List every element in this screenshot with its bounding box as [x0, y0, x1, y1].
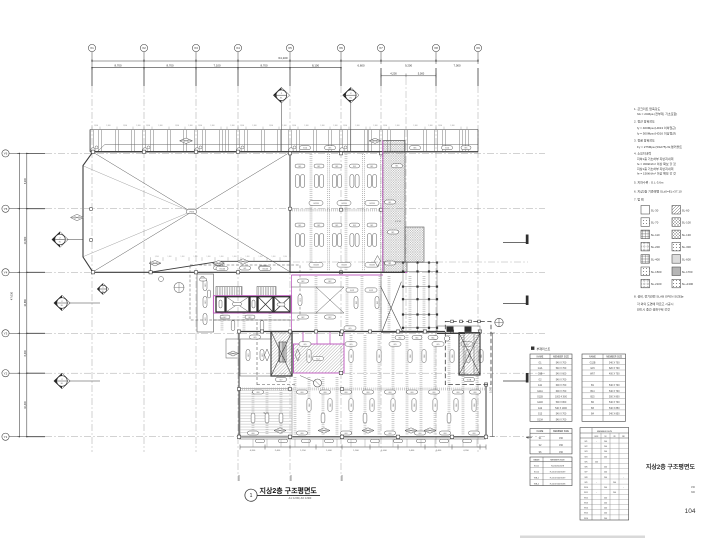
svg-text:G1B: G1B — [538, 374, 543, 376]
svg-text:G13: G13 — [538, 414, 543, 416]
svg-text:fy = 500Mpa (HD16 이상철근): fy = 500Mpa (HD16 이상철근) — [637, 131, 676, 136]
svg-text:SC01: SC01 — [534, 466, 540, 468]
svg-text:1,300: 1,300 — [428, 125, 432, 127]
svg-text:Fy = 275Mpa (SS275)-W,앵커볼트: Fy = 275Mpa (SS275)-W,앵커볼트 — [637, 144, 682, 149]
svg-text:8,700: 8,700 — [167, 63, 174, 67]
svg-text:1,300: 1,300 — [168, 256, 172, 258]
svg-text:1. 콘크리트 압축강도: 1. 콘크리트 압축강도 — [634, 106, 660, 111]
svg-text:1: 1 — [250, 493, 253, 499]
svg-text:500 X 800: 500 X 800 — [556, 402, 567, 404]
svg-text:1,300: 1,300 — [155, 256, 159, 258]
svg-text:1,300: 1,300 — [181, 256, 185, 258]
svg-text:SC02: SC02 — [534, 472, 540, 474]
svg-text:A1: 1/150, A3: 1/300: A1: 1/150, A3: 1/300 — [289, 497, 312, 500]
svg-text:G11: G11 — [538, 385, 543, 387]
svg-text:1,300: 1,300 — [413, 125, 417, 127]
svg-text:540 X 700: 540 X 700 — [609, 391, 620, 393]
svg-text:WB-2: WB-2 — [534, 484, 540, 486]
svg-text:620 X 700: 620 X 700 — [609, 368, 620, 370]
svg-text:OWS: OWS — [189, 211, 195, 213]
svg-text:X7: X7 — [379, 46, 383, 50]
svg-text:G11B: G11B — [369, 203, 375, 205]
svg-text:SL-30: SL-30 — [651, 208, 659, 212]
svg-text:1,300: 1,300 — [283, 256, 287, 258]
svg-text:1,300: 1,300 — [252, 125, 256, 127]
svg-text:1,300: 1,300 — [123, 125, 127, 127]
svg-text:1,300: 1,300 — [304, 125, 308, 127]
svg-text:MEMBER SIZE: MEMBER SIZE — [553, 356, 569, 358]
svg-text:1,300: 1,300 — [158, 125, 162, 127]
svg-text:540 X 700: 540 X 700 — [609, 402, 620, 404]
svg-text:fe = 150kN/m² 이상 확보 할 것: fe = 150kN/m² 이상 확보 할 것 — [637, 171, 676, 176]
svg-text:6,400: 6,400 — [24, 350, 27, 357]
svg-text:1,300: 1,300 — [438, 125, 442, 127]
svg-text:G12B: G12B — [590, 362, 596, 364]
svg-text:1,300: 1,300 — [188, 125, 192, 127]
svg-text:X8: X8 — [434, 46, 438, 50]
svg-text:WB-1: WB-1 — [534, 478, 540, 480]
svg-text:8,100: 8,100 — [312, 63, 319, 67]
svg-text:2,400: 2,400 — [436, 450, 442, 452]
svg-text:H-100X100X6X8: H-100X100X6X8 — [550, 484, 566, 486]
svg-text:X3: X3 — [194, 46, 198, 50]
svg-text:NAME: NAME — [537, 355, 544, 358]
svg-text:1,300: 1,300 — [450, 125, 454, 127]
svg-text:1,300: 1,300 — [175, 125, 179, 127]
svg-text:Y3: Y3 — [4, 331, 8, 335]
svg-text:1,300: 1,300 — [259, 256, 263, 258]
svg-text:4,200: 4,200 — [463, 450, 469, 452]
svg-text:지상2층 구조평면도: 지상2층 구조평면도 — [260, 486, 318, 495]
svg-text:지상1층 기초하부 지반지내력: 지상1층 기초하부 지반지내력 — [637, 166, 674, 171]
svg-text:2. 철근 항복강도: 2. 철근 항복강도 — [634, 119, 655, 124]
svg-text:SL-110: SL-110 — [651, 233, 660, 237]
svg-text:4. 소요지내력: 4. 소요지내력 — [634, 151, 651, 156]
svg-text:SL-400: SL-400 — [651, 258, 660, 262]
svg-text:540 X 700: 540 X 700 — [609, 385, 620, 387]
svg-text:부재리스트: 부재리스트 — [537, 346, 551, 351]
svg-text:1,300: 1,300 — [106, 125, 110, 127]
svg-text:B14: B14 — [590, 391, 595, 393]
svg-text:NAME: NAME — [537, 430, 544, 433]
svg-text:G12A: G12A — [262, 267, 268, 270]
svg-text:W67: W67 — [590, 374, 595, 376]
svg-text:1,300: 1,300 — [233, 256, 237, 258]
svg-text:540 X 700: 540 X 700 — [556, 414, 567, 416]
svg-text:G12A: G12A — [219, 267, 225, 270]
svg-text:G15: G15 — [590, 368, 595, 370]
svg-text:H-200X200X8: H-200X200X8 — [551, 466, 565, 468]
svg-text:47,030: 47,030 — [10, 291, 14, 300]
svg-text:1,500: 1,500 — [353, 450, 359, 452]
svg-text:8. 설비, 전기관련 SLAB OPEN SIZE는: 8. 설비, 전기관련 SLAB OPEN SIZE는 — [634, 294, 684, 299]
svg-text:5,000: 5,000 — [490, 386, 493, 393]
svg-text:540 X 700: 540 X 700 — [609, 362, 620, 364]
svg-text:1,300: 1,300 — [343, 125, 347, 127]
svg-text:7,000: 7,000 — [454, 63, 461, 67]
svg-text:1,300: 1,300 — [373, 125, 377, 127]
svg-text:G11B: G11B — [341, 203, 347, 205]
svg-text:G11D: G11D — [537, 402, 543, 404]
svg-text:fy = 400Mpa (HD13 이하철근): fy = 400Mpa (HD13 이하철근) — [637, 125, 676, 130]
svg-text:10,860: 10,860 — [24, 298, 27, 306]
svg-text:3. 철골 항복강도: 3. 철골 항복강도 — [634, 138, 655, 143]
svg-text:MEMBER SIZE: MEMBER SIZE — [550, 459, 565, 461]
svg-text:4 X 10: 4 X 10 — [395, 221, 402, 223]
svg-text:1,300: 1,300 — [292, 125, 296, 127]
svg-text:1,300: 1,300 — [246, 256, 250, 258]
svg-text:H-150X150X6X9: H-150X150X6X9 — [550, 472, 566, 474]
svg-text:300: 300 — [691, 491, 696, 494]
svg-text:1,300: 1,300 — [194, 256, 198, 258]
svg-text:1,300: 1,300 — [282, 125, 286, 127]
svg-text:G12: G12 — [538, 408, 543, 410]
svg-text:G11B: G11B — [341, 265, 347, 267]
svg-text:각 외의 도면에 따르고 시공시: 각 외의 도면에 따르고 시공시 — [637, 301, 674, 306]
svg-text:4,200: 4,200 — [250, 450, 256, 452]
svg-text:NAME: NAME — [533, 458, 540, 461]
svg-text:540 X 600: 540 X 600 — [556, 374, 567, 376]
svg-text:9,200: 9,200 — [24, 177, 27, 184]
svg-text:X1: X1 — [90, 46, 94, 50]
svg-text:지상2층 구조평면도: 지상2층 구조평면도 — [646, 463, 696, 471]
svg-text:540 X 700: 540 X 700 — [556, 362, 567, 364]
svg-text:Y4: Y4 — [4, 270, 8, 274]
svg-text:SL-300: SL-300 — [682, 245, 691, 249]
svg-text:지하1층 기초하부 지반지내력: 지하1층 기초하부 지반지내력 — [637, 156, 674, 161]
svg-text:1,300: 1,300 — [146, 125, 150, 127]
svg-text:540 X 850: 540 X 850 — [609, 414, 620, 416]
svg-text:600 X 700: 600 X 700 — [556, 391, 567, 393]
svg-text:1000 X 600: 1000 X 600 — [555, 397, 567, 399]
svg-text:10,660: 10,660 — [24, 236, 27, 244]
svg-text:104: 104 — [685, 508, 696, 515]
svg-text:X2: X2 — [142, 46, 146, 50]
svg-text:540 X 850: 540 X 850 — [609, 408, 620, 410]
svg-text:1,400: 1,400 — [381, 450, 387, 452]
svg-text:MEMBER SIZE: MEMBER SIZE — [597, 431, 613, 433]
svg-text:1,300: 1,300 — [207, 256, 211, 258]
svg-text:1,300: 1,300 — [269, 125, 273, 127]
svg-text:SL-1700: SL-1700 — [682, 270, 693, 274]
svg-text:SL+1300: SL+1300 — [682, 282, 694, 286]
svg-text:540 X 700: 540 X 700 — [556, 379, 567, 381]
svg-text:7,100: 7,100 — [214, 63, 221, 67]
svg-text:Y5: Y5 — [4, 207, 8, 211]
svg-text:X4: X4 — [236, 46, 240, 50]
svg-text:MEMBER SIZE: MEMBER SIZE — [606, 356, 622, 358]
svg-text:1,300: 1,300 — [272, 256, 276, 258]
svg-text:540 X 700: 540 X 700 — [556, 419, 567, 421]
svg-text:G11B: G11B — [313, 265, 319, 267]
svg-text:Y6: Y6 — [4, 151, 8, 155]
svg-text:1,300: 1,300 — [94, 125, 98, 127]
svg-text:fck = 24Mpa (전부재, 기초포함): fck = 24Mpa (전부재, 기초포함) — [637, 111, 677, 116]
svg-text:B15: B15 — [590, 397, 595, 399]
svg-text:1,300: 1,300 — [320, 125, 324, 127]
svg-text:1,400: 1,400 — [409, 450, 415, 452]
svg-text:G1A: G1A — [538, 367, 543, 370]
svg-text:7. 범 례: 7. 범 례 — [634, 196, 644, 201]
svg-text:10,400: 10,400 — [24, 401, 27, 409]
svg-text:1,300: 1,300 — [220, 256, 224, 258]
svg-text:5. 지하수위 : G.L-3.6m: 5. 지하수위 : G.L-3.6m — [634, 180, 664, 185]
svg-text:SL-1500: SL-1500 — [651, 270, 662, 274]
svg-text:SL-70: SL-70 — [651, 221, 659, 225]
svg-text:G13A: G13A — [537, 418, 543, 421]
svg-text:SL-200: SL-200 — [651, 245, 660, 249]
svg-text:1,300: 1,300 — [230, 125, 234, 127]
svg-text:6. 지상2층 기준레벨 SL±0=EL+37.10: 6. 지상2층 기준레벨 SL±0=EL+37.10 — [634, 189, 682, 194]
svg-text:G7A: G7A — [467, 378, 472, 381]
svg-text:SL-60: SL-60 — [682, 208, 690, 212]
svg-text:400 X 700: 400 X 700 — [609, 374, 620, 376]
svg-text:1,300: 1,300 — [210, 125, 214, 127]
svg-text:H-150X100X6X9: H-150X100X6X9 — [550, 478, 566, 480]
svg-text:G11B: G11B — [537, 397, 543, 399]
svg-text:1,300: 1,300 — [395, 125, 399, 127]
svg-text:반드시 중간 설화구획 할것: 반드시 중간 설화구획 할것 — [637, 307, 670, 312]
svg-text:1,300: 1,300 — [383, 125, 387, 127]
svg-text:G11A: G11A — [537, 390, 543, 393]
svg-text:8,700: 8,700 — [261, 63, 268, 67]
svg-text:540 X 700: 540 X 700 — [556, 368, 567, 370]
svg-text:1,300: 1,300 — [198, 125, 202, 127]
svg-text:1,300: 1,300 — [355, 125, 359, 127]
svg-text:X9: X9 — [476, 46, 480, 50]
svg-text:1,300: 1,300 — [333, 125, 337, 127]
svg-text:G11B: G11B — [369, 265, 375, 267]
svg-text:1,150: 1,150 — [300, 450, 306, 452]
svg-text:X6: X6 — [339, 46, 343, 50]
svg-text:9,200: 9,200 — [405, 63, 412, 67]
svg-text:fe = 300kN/m² 이상 확보 할 것: fe = 300kN/m² 이상 확보 할 것 — [637, 161, 676, 166]
svg-text:1,300: 1,300 — [136, 125, 140, 127]
svg-text:NAME: NAME — [589, 355, 596, 358]
svg-text:5,000: 5,000 — [418, 71, 425, 75]
svg-text:6,600: 6,600 — [358, 63, 365, 67]
svg-text:G11B: G11B — [313, 203, 319, 205]
svg-text:1,300: 1,300 — [240, 125, 244, 127]
svg-text:MEMBER SIZE: MEMBER SIZE — [553, 431, 569, 433]
svg-text:SL-100: SL-100 — [682, 221, 691, 225]
svg-text:Y1: Y1 — [4, 435, 8, 439]
svg-text:Y2: Y2 — [4, 371, 8, 375]
svg-text:SL-130: SL-130 — [682, 233, 691, 237]
svg-text:SL-2100: SL-2100 — [651, 282, 662, 286]
svg-text:500 X 800: 500 X 800 — [609, 397, 620, 399]
svg-text:540 X 1000: 540 X 1000 — [555, 408, 567, 410]
svg-text:150: 150 — [691, 486, 696, 489]
svg-text:SL-600: SL-600 — [682, 258, 691, 262]
svg-text:2,400: 2,400 — [275, 450, 281, 452]
svg-text:4,200: 4,200 — [390, 71, 397, 75]
svg-text:600 X 700: 600 X 700 — [556, 385, 567, 387]
svg-text:64,100: 64,100 — [278, 56, 288, 60]
svg-text:1,400: 1,400 — [326, 450, 332, 452]
svg-text:X5: X5 — [288, 46, 292, 50]
svg-text:8,700: 8,700 — [115, 63, 122, 67]
